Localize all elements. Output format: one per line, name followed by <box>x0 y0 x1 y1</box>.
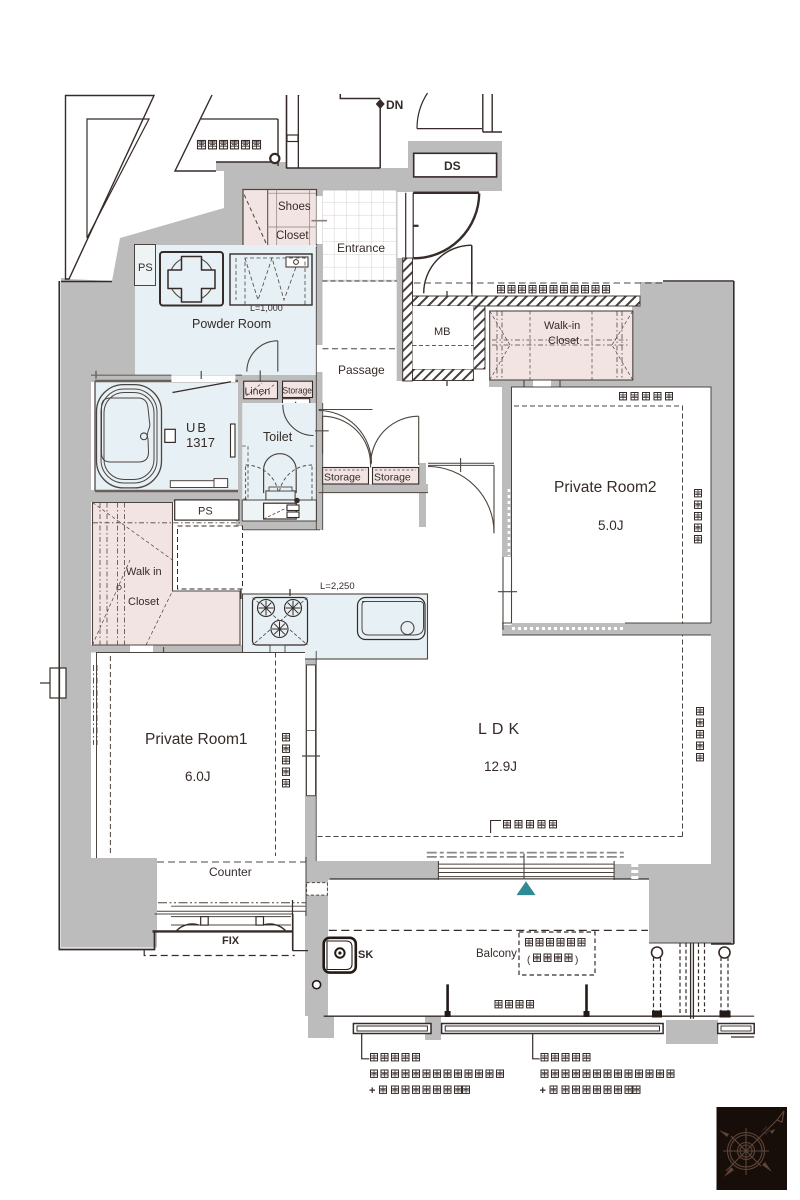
svg-text:+: + <box>540 1085 546 1097</box>
svg-text:6.0J: 6.0J <box>185 769 211 784</box>
svg-text:Walk in: Walk in <box>126 566 162 578</box>
svg-text:L=2,250: L=2,250 <box>320 581 355 592</box>
svg-text:LDK: LDK <box>478 721 524 738</box>
svg-text:PS: PS <box>198 506 213 518</box>
svg-text:Storage: Storage <box>374 472 411 484</box>
svg-text:Balcony: Balcony <box>476 948 517 960</box>
svg-text:FIX: FIX <box>222 935 240 947</box>
svg-text:Linen: Linen <box>245 386 271 398</box>
svg-text:+: + <box>369 1085 375 1097</box>
svg-text:Closet: Closet <box>276 230 309 242</box>
svg-text:DS: DS <box>444 159 461 173</box>
svg-text:5.0J: 5.0J <box>598 518 624 533</box>
svg-text:Private Room1: Private Room1 <box>145 731 248 748</box>
svg-text:Walk-in: Walk-in <box>544 320 580 332</box>
svg-text:UB: UB <box>186 420 208 435</box>
svg-text:PS: PS <box>138 262 153 274</box>
svg-text:Entrance: Entrance <box>337 241 385 255</box>
svg-text:Storage: Storage <box>324 472 361 484</box>
svg-text:Private Room2: Private Room2 <box>554 479 657 496</box>
svg-text:Counter: Counter <box>209 865 252 879</box>
svg-text:1317: 1317 <box>186 435 215 450</box>
svg-text:Closet: Closet <box>548 335 579 347</box>
svg-text:L=1,000: L=1,000 <box>250 303 283 313</box>
svg-text:MB: MB <box>434 326 451 338</box>
svg-text:Passage: Passage <box>338 363 385 377</box>
svg-text:12.9J: 12.9J <box>484 759 517 774</box>
svg-text:Powder Room: Powder Room <box>192 317 271 331</box>
svg-text:): ) <box>575 955 578 966</box>
svg-text:Closet: Closet <box>128 596 159 608</box>
svg-text:Storage: Storage <box>283 386 313 396</box>
svg-text:Toilet: Toilet <box>263 430 293 444</box>
svg-text:Shoes: Shoes <box>278 201 311 213</box>
svg-text:DN: DN <box>386 98 403 112</box>
svg-text:SK: SK <box>358 949 373 961</box>
